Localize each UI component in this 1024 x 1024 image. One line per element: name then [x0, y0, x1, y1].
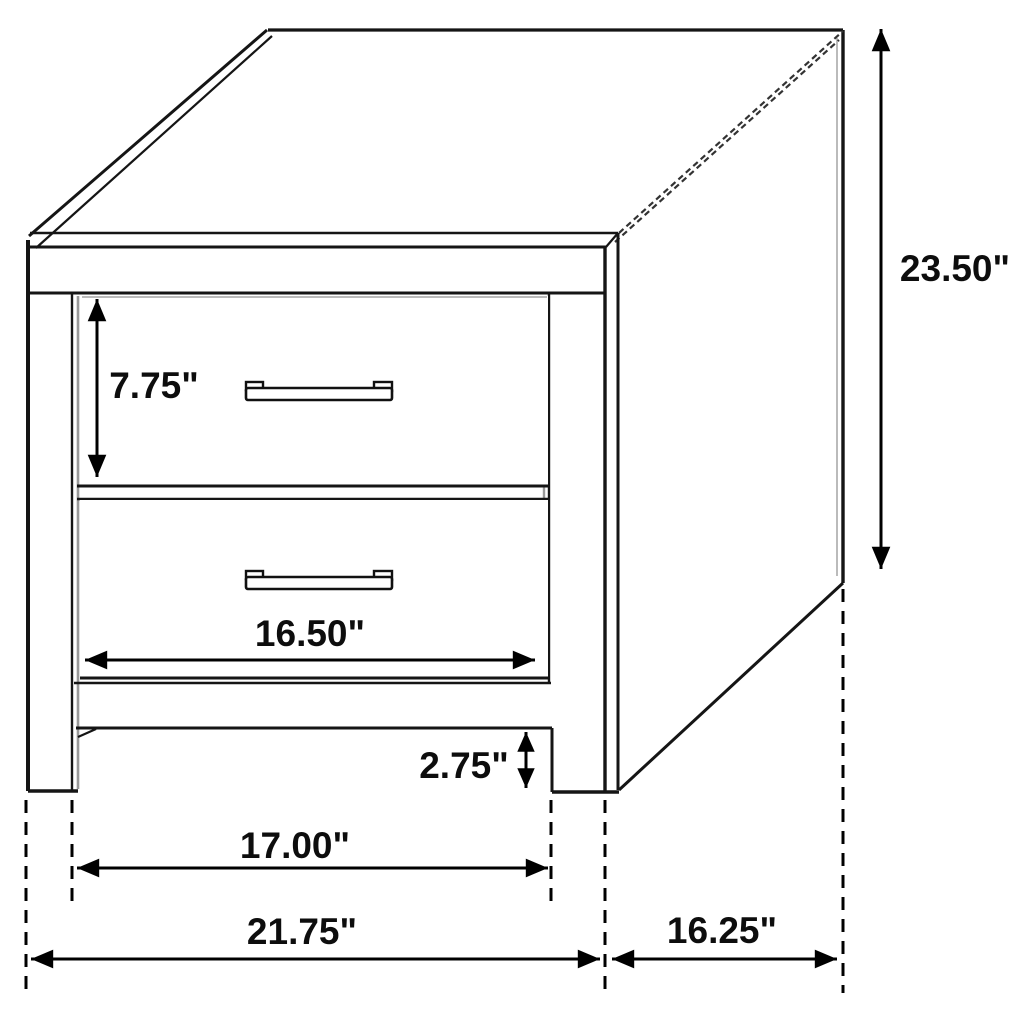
dimension-overall-width: 21.75": [31, 911, 600, 959]
dim-label-overall-height: 23.50": [900, 248, 1010, 289]
nightstand-dimension-diagram: 23.50" 7.75" 16.50" 2.75" 17.00" 21.75": [0, 0, 1024, 1024]
diagram-canvas: 23.50" 7.75" 16.50" 2.75" 17.00" 21.75": [0, 0, 1024, 1024]
bottom-rail: [74, 683, 552, 728]
nightstand-drawing: [28, 30, 843, 792]
dimension-inner-leg-span: 17.00": [77, 825, 548, 868]
drawer-divider: [77, 486, 550, 499]
dim-label-inner-leg-span: 17.00": [240, 825, 350, 866]
front-right-leg: [552, 728, 619, 792]
dim-label-overall-depth: 16.25": [667, 910, 777, 951]
dimension-overall-depth: 16.25": [612, 910, 837, 959]
dimension-leg-height: 2.75": [419, 732, 526, 788]
front-left-leg: [28, 729, 96, 791]
dim-label-top-drawer-height: 7.75": [109, 365, 199, 406]
dim-label-overall-width: 21.75": [247, 911, 357, 952]
dimension-overall-height: 23.50": [881, 29, 1010, 569]
dim-label-drawer-front-width: 16.50": [255, 613, 365, 654]
dim-label-leg-height: 2.75": [419, 745, 509, 786]
